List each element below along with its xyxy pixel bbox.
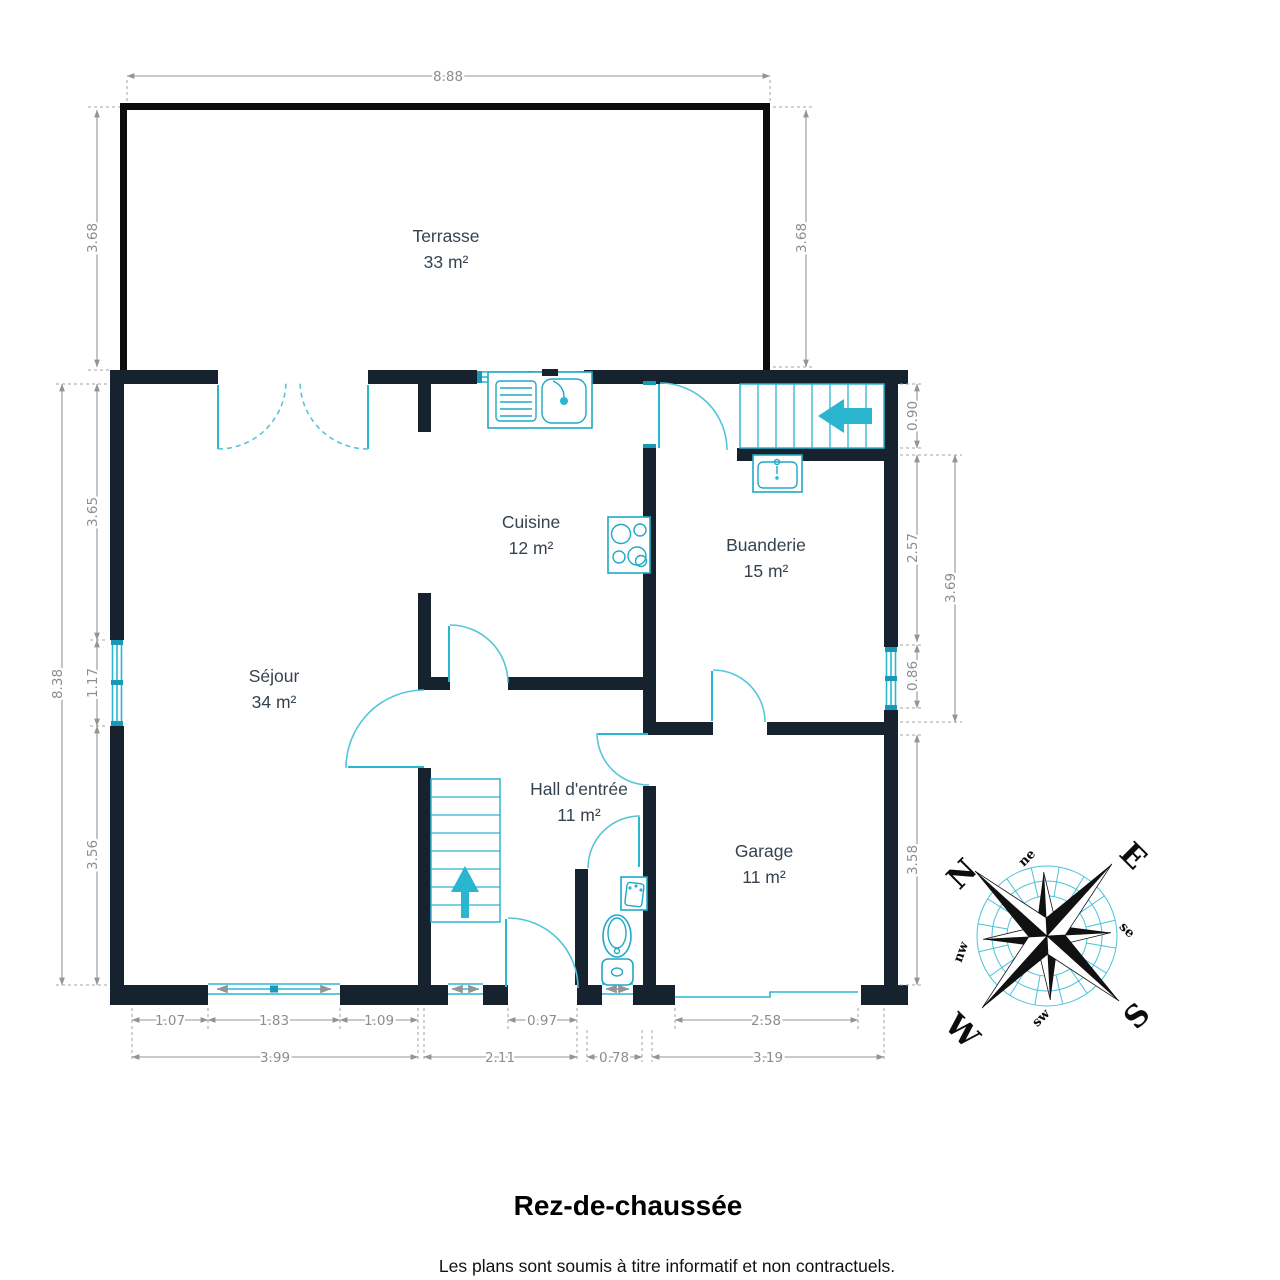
dim-left-total: 8.38: [50, 669, 66, 699]
room-area-garage: 11 m²: [742, 867, 786, 887]
room-label-buanderie: Buanderie: [726, 535, 806, 555]
door-hall-garage: [597, 733, 649, 785]
stove: [608, 517, 650, 573]
room-area-sejour: 34 m²: [252, 692, 297, 712]
door-front-entrance: [506, 918, 578, 988]
room-area-buanderie: 15 m²: [744, 561, 789, 581]
dim-c1: 3.99: [260, 1050, 290, 1066]
window-wc-bottom: [602, 984, 633, 1005]
room-area-terrasse: 33 m²: [424, 252, 469, 272]
room-label-cuisine: Cuisine: [502, 512, 560, 532]
window-living-left: [110, 640, 124, 726]
dim-b4: 0.97: [527, 1013, 557, 1029]
compass-west-label: W: [937, 1006, 987, 1056]
dim-laundry-total: 3.69: [943, 573, 959, 603]
floor-plan-drawing: 8.88 3.68 3.68 8.38 3.65 1.17 3.56 0.90 …: [0, 0, 1280, 1280]
window-laundry-right: [884, 647, 898, 710]
disclaimer-text: Les plans sont soumis à titre informatif…: [439, 1256, 895, 1277]
room-label-garage: Garage: [735, 841, 793, 861]
room-label-hall: Hall d'entrée: [530, 779, 628, 799]
dim-b2: 1.83: [259, 1013, 289, 1029]
toilet: [602, 915, 633, 985]
door-kitchen-hall: [449, 625, 508, 683]
dim-terrace-left: 3.68: [85, 223, 101, 253]
room-area-hall: 11 m²: [557, 805, 601, 825]
dim-laundry-window: 0.86: [905, 661, 921, 691]
compass-rose-icon: N E S W ne se sw nw: [910, 799, 1184, 1073]
staircase-hall: [431, 779, 500, 922]
door-kitchen-landing: [643, 381, 727, 450]
dimensions: 8.88 3.68 3.68 8.38 3.65 1.17 3.56 0.90 …: [50, 69, 959, 1066]
compass-sw-label: sw: [1030, 1006, 1054, 1030]
room-label-terrasse: Terrasse: [412, 226, 479, 246]
dim-left-upper: 3.65: [85, 497, 101, 527]
compass-nw-label: nw: [951, 939, 972, 964]
dim-stairs-width: 0.90: [905, 401, 921, 431]
compass-se-label: se: [1116, 920, 1138, 942]
floor-plan-page: 8.88 3.68 3.68 8.38 3.65 1.17 3.56 0.90 …: [0, 0, 1280, 1280]
kitchen-sink: [488, 369, 592, 428]
dim-left-lower: 3.56: [85, 840, 101, 870]
dim-terrace-right: 3.68: [794, 223, 810, 253]
door-living-hall: [346, 690, 424, 768]
dim-c2: 2.11: [485, 1050, 515, 1066]
dim-top-width: 8.88: [433, 69, 463, 85]
dim-b3: 1.09: [364, 1013, 394, 1029]
laundry-sink: [753, 455, 802, 492]
room-area-cuisine: 12 m²: [509, 538, 554, 558]
dim-garage-side: 3.58: [905, 845, 921, 875]
window-living-bottom: [208, 984, 340, 1005]
dim-b5: 2.58: [751, 1013, 781, 1029]
compass-north-label: N: [940, 852, 984, 896]
compass-east-label: E: [1112, 836, 1153, 877]
dimension-extension-lines: [56, 80, 962, 1062]
garage-door: [675, 992, 858, 997]
door-living-terrace-double: [218, 381, 368, 449]
door-garage-laundry: [712, 670, 765, 722]
staircase-upper: [740, 384, 884, 448]
room-label-sejour: Séjour: [249, 666, 300, 686]
page-title: Rez-de-chaussée: [514, 1190, 743, 1222]
dim-c4: 3.19: [753, 1050, 783, 1066]
window-hall-bottom: [448, 984, 483, 1005]
compass-south-label: S: [1117, 996, 1157, 1036]
dim-left-window: 1.17: [85, 668, 101, 698]
dim-laundry-upper: 2.57: [905, 533, 921, 563]
dim-c3: 0.78: [599, 1050, 629, 1066]
wc-sink: [621, 877, 647, 910]
room-labels: Terrasse 33 m² Cuisine 12 m² Buanderie 1…: [249, 226, 806, 887]
dim-b1: 1.07: [155, 1013, 185, 1029]
